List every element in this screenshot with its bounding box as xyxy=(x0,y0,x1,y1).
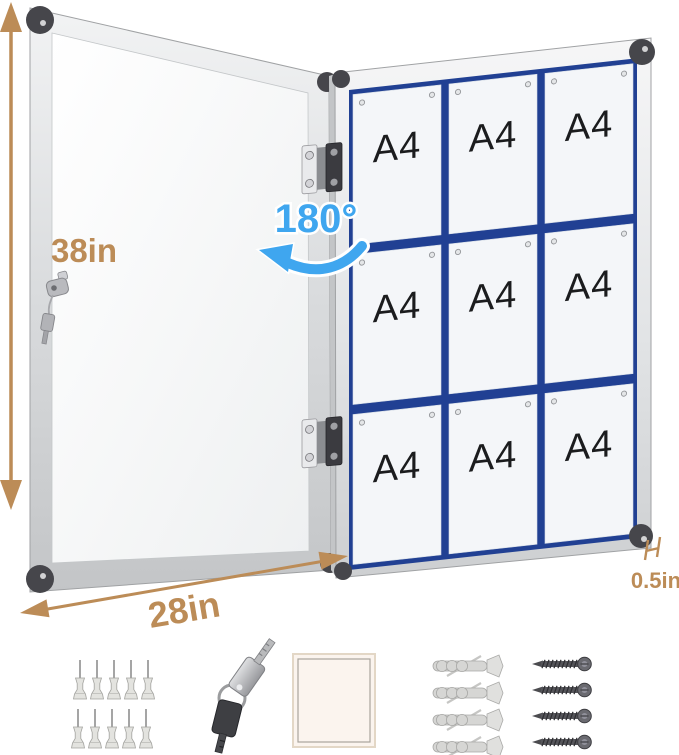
product-illustration: A4 A4 A4 A4 xyxy=(0,0,679,755)
screws xyxy=(532,657,591,749)
hinge-icon xyxy=(302,417,342,468)
sheet-pin-icon xyxy=(621,391,626,397)
push-pin-icon xyxy=(91,660,104,699)
key-dark xyxy=(207,699,243,755)
a4-label: A4 xyxy=(373,284,421,331)
a4-sheet: A4 xyxy=(449,74,537,234)
keys-icon xyxy=(207,634,281,755)
wall-anchor-icon xyxy=(433,682,503,704)
sheet-pin-icon xyxy=(455,89,460,95)
door-panel xyxy=(52,33,309,563)
depth-bracket-icon xyxy=(645,537,660,560)
push-pin-icon xyxy=(108,660,121,699)
a4-label: A4 xyxy=(469,114,517,161)
sheet-pin-icon xyxy=(359,420,364,426)
push-pin-icon xyxy=(125,660,138,699)
wall-anchor-icon xyxy=(433,736,503,755)
a4-sheet: A4 xyxy=(449,394,537,554)
key-silver xyxy=(228,634,282,697)
sheet-pin-icon xyxy=(429,252,434,258)
sheet-pin-icon xyxy=(525,241,530,247)
screw-icon xyxy=(532,735,591,749)
a4-sheet: A4 xyxy=(353,85,441,245)
height-label: 38in xyxy=(51,232,117,269)
screw-icon xyxy=(532,709,591,723)
sheet-pin-icon xyxy=(621,231,626,237)
accessories-row xyxy=(72,634,592,755)
open-door xyxy=(26,6,340,593)
sheet-pin-icon xyxy=(359,260,364,266)
push-pin-icon xyxy=(106,709,119,748)
door-swing-label: 180° xyxy=(275,197,358,241)
sheet-pin-icon xyxy=(429,92,434,98)
a4-label: A4 xyxy=(373,444,421,491)
display-board: A4 A4 A4 A4 xyxy=(332,38,655,580)
push-pin-icon xyxy=(140,709,153,748)
hinge-icon xyxy=(302,143,342,194)
sheet-pin-icon xyxy=(621,71,626,77)
sheet-pin-icon xyxy=(525,401,530,407)
board-grid: A4 A4 A4 A4 xyxy=(349,58,637,570)
wall-anchor-icon xyxy=(433,709,503,731)
product-image: A4 A4 A4 A4 xyxy=(0,0,679,755)
wall-anchor-icon xyxy=(433,655,503,677)
push-pins xyxy=(72,660,155,748)
sheet-pin-icon xyxy=(551,78,556,84)
wall-anchors xyxy=(433,655,503,755)
a4-label: A4 xyxy=(565,103,613,150)
adhesive-pad xyxy=(293,654,375,747)
a4-sheet: A4 xyxy=(449,234,537,394)
arrow-left-icon xyxy=(20,599,50,617)
a4-sheet: A4 xyxy=(545,64,633,224)
push-pin-icon xyxy=(72,709,85,748)
a4-label: A4 xyxy=(565,263,613,310)
push-pin-icon xyxy=(89,709,102,748)
a4-sheet: A4 xyxy=(353,405,441,565)
a4-label: A4 xyxy=(469,274,517,321)
arrow-down-icon xyxy=(0,480,22,510)
a4-sheet: A4 xyxy=(353,245,441,405)
sheet-pin-icon xyxy=(359,100,364,106)
sheet-pin-icon xyxy=(429,412,434,418)
a4-sheet: A4 xyxy=(545,384,633,544)
a4-sheet: A4 xyxy=(545,224,633,384)
sheet-pin-icon xyxy=(455,409,460,415)
screw-icon xyxy=(532,657,591,671)
screw-icon xyxy=(532,683,591,697)
sheet-pin-icon xyxy=(551,398,556,404)
a4-label: A4 xyxy=(373,124,421,171)
sheet-pin-icon xyxy=(455,249,460,255)
sheet-pin-icon xyxy=(525,81,530,87)
sheet-pin-icon xyxy=(551,238,556,244)
a4-label: A4 xyxy=(469,434,517,481)
depth-label: 0.5in xyxy=(631,568,679,593)
push-pin-icon xyxy=(74,660,87,699)
push-pin-icon xyxy=(123,709,136,748)
a4-label: A4 xyxy=(565,423,613,470)
arrow-up-icon xyxy=(0,2,22,32)
push-pin-icon xyxy=(142,660,155,699)
